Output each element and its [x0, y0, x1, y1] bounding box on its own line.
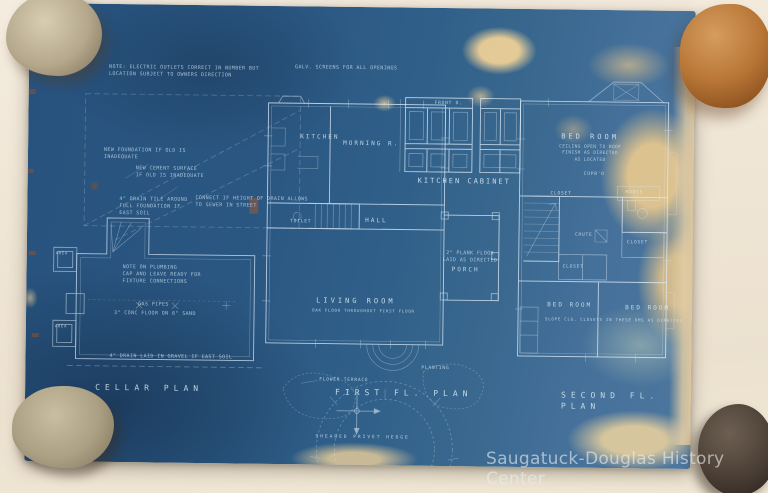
cellar-plan-title: CELLAR PLAN — [95, 382, 203, 395]
closet-mid-label: CLOSET — [563, 264, 584, 271]
photo-of-blueprint: NOTE: ELECTRIC OUTLETS CORRECT IN NUMBER… — [0, 0, 768, 493]
cellar-note-cement: NEW CEMENT SURFACE IF OLD IS INADEQUATE — [136, 165, 204, 180]
watermark-text: Saugatuck-Douglas History Center — [486, 449, 768, 489]
room-toilet: TOILET — [290, 219, 311, 226]
cupboard-label: CUPB'D — [584, 172, 605, 179]
stone-paperweight-top-left — [6, 0, 102, 76]
room-porch: PORCH — [452, 266, 480, 275]
chute-label: CHUTE — [575, 233, 593, 240]
bedroom-left-label: BED ROOM — [547, 301, 592, 310]
room-hall: HALL — [365, 217, 388, 226]
bedroom-right-label: BED ROOM — [625, 304, 670, 313]
second-floor-plan-title: SECOND FL. PLAN — [561, 389, 691, 413]
hooks-label: HOOKS — [626, 190, 644, 197]
stone-paperweight-top-right — [680, 4, 768, 108]
note-electric-outlets: NOTE: ELECTRIC OUTLETS CORRECT IN NUMBER… — [109, 64, 259, 80]
cellar-note-sewer: CONNECT IF HEIGHT OF DRAIN ALLOWS TO SEW… — [195, 195, 308, 210]
closet-right-label: CLOSET — [627, 240, 648, 247]
room-morning-room: MORNING R. — [343, 140, 399, 149]
first-floor-plan-drawing — [260, 96, 501, 469]
bedroom-top-label: BED ROOM — [561, 132, 619, 143]
cellar-note-drain-gravel: 4" DRAIN LAID IN GRAVEL IF EAST SOIL — [109, 353, 232, 361]
cellar-note-conc-floor: 3" CONC FLOOR ON 6" SAND — [114, 310, 196, 318]
privet-hedge-label: SHEARED PRIVET HEDGE — [315, 434, 409, 441]
stone-paperweight-bottom-left — [12, 386, 114, 468]
first-floor-plan-title: FIRST FL. PLAN — [335, 387, 473, 400]
cabinet-front-label: FRONT D. — [435, 101, 463, 108]
kitchen-cabinet-title: KITCHEN CABINET — [418, 177, 511, 188]
cellar-plan-drawing — [52, 93, 300, 368]
cellar-note-gas-pipes: GAS PIPES — [138, 301, 169, 308]
planting-label: PLANTING — [421, 366, 449, 373]
closet-top-label: CLOSET — [550, 191, 571, 198]
cellar-area-label-2: AREA — [55, 323, 67, 328]
cellar-area-label-1: AREA — [56, 250, 68, 255]
room-living-room: LIVING ROOM — [316, 296, 395, 307]
flower-terrace-label: FLOWER TERRACE — [319, 378, 368, 385]
room-kitchen: KITCHEN — [300, 133, 339, 142]
bedroom-ceiling-note: CEILING OPEN TO ROOF FINISH AS DIRECTED … — [559, 144, 621, 164]
cellar-note-drain-tile: 4" DRAIN TILE AROUND FULL FOUNDATION IF … — [119, 196, 187, 218]
kitchen-cabinet-drawing — [400, 97, 521, 172]
cellar-note-plumbing: NOTE ON PLUMBING CAP AND LEAVE READY FOR… — [122, 264, 201, 286]
porch-note: 2" PLANK FLOOR LAID AS DIRECTED — [443, 250, 498, 265]
note-screens: GALV. SCREENS FOR ALL OPENINGS — [295, 64, 397, 72]
cellar-note-foundation: NEW FOUNDATION IF OLD IS INADEQUATE — [104, 147, 186, 162]
blueprint-paper: NOTE: ELECTRIC OUTLETS CORRECT IN NUMBER… — [24, 3, 696, 469]
